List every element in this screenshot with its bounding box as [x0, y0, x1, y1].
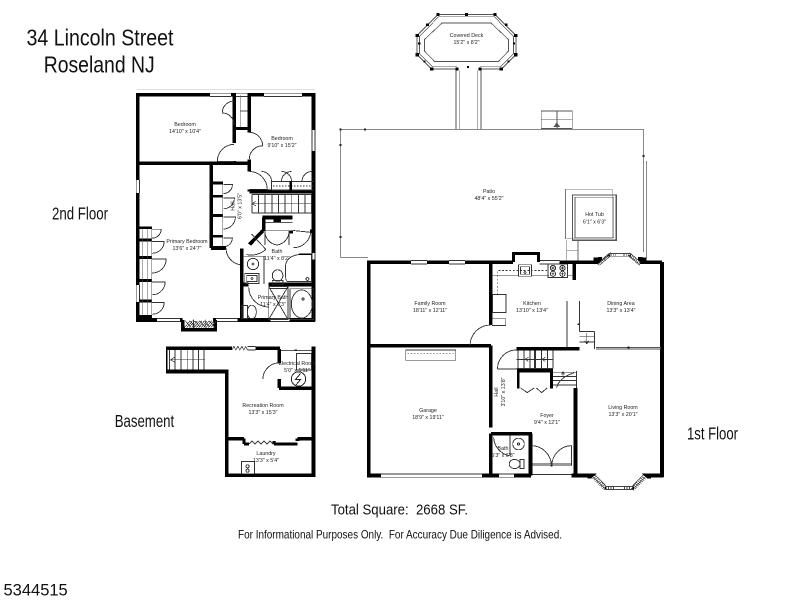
svg-text:Foyer: Foyer [540, 413, 554, 419]
svg-text:48'4" x 55'2": 48'4" x 55'2" [474, 196, 503, 202]
svg-text:18'11" x 12'11": 18'11" x 12'11" [413, 308, 447, 314]
svg-text:Family Room: Family Room [414, 301, 446, 307]
svg-text:13'3" x 15'3": 13'3" x 15'3" [248, 410, 277, 416]
svg-text:Primary Bath: Primary Bath [258, 295, 289, 301]
svg-text:11'4" x 7'3": 11'4" x 7'3" [260, 302, 286, 308]
svg-text:13'6" x 24'7": 13'6" x 24'7" [172, 246, 201, 252]
svg-text:Laundry: Laundry [256, 451, 275, 457]
svg-text:6'1" x 6'3": 6'1" x 6'3" [583, 220, 606, 226]
svg-text:13'3" x 20'1": 13'3" x 20'1" [608, 412, 637, 418]
svg-text:Hall: Hall [494, 387, 500, 396]
svg-text:Recreation Room: Recreation Room [242, 403, 284, 409]
svg-text:Bath: Bath [498, 446, 509, 452]
svg-text:11'4" x 8'2": 11'4" x 8'2" [264, 256, 290, 262]
svg-text:Basement: Basement [115, 411, 175, 431]
svg-text:3'10" x 13'8": 3'10" x 13'8" [501, 377, 507, 406]
svg-text:2nd Floor: 2nd Floor [52, 204, 108, 224]
svg-text:34 Lincoln Street: 34 Lincoln Street [27, 25, 174, 51]
svg-text:Patio: Patio [483, 189, 495, 195]
svg-text:Roseland NJ: Roseland NJ [44, 51, 155, 77]
svg-text:Living Room: Living Room [608, 405, 638, 411]
svg-text:Bath: Bath [272, 249, 283, 255]
svg-text:Dining Area: Dining Area [607, 301, 634, 307]
svg-text:Garage: Garage [419, 408, 437, 414]
svg-text:18'9" x 19'11": 18'9" x 19'11" [412, 415, 444, 421]
svg-text:Bedroom: Bedroom [271, 136, 293, 142]
svg-text:Total Square: 2668 SF.: Total Square: 2668 SF. [331, 503, 468, 519]
svg-text:9'4" x 12'1": 9'4" x 12'1" [534, 420, 560, 426]
svg-text:Hall: Hall [231, 201, 237, 210]
svg-text:15'2" x 8'2": 15'2" x 8'2" [453, 40, 479, 46]
svg-text:Kitchen: Kitchen [523, 301, 541, 307]
svg-text:5344515: 5344515 [4, 582, 68, 600]
svg-text:13'3" x 5'4": 13'3" x 5'4" [253, 458, 279, 464]
svg-text:9'10" x 15'2": 9'10" x 15'2" [267, 143, 296, 149]
svg-text:Electrical Room: Electrical Room [278, 361, 316, 367]
svg-text:5'3" x 6'8": 5'3" x 6'8" [491, 453, 514, 459]
svg-text:13'10" x 13'4": 13'10" x 13'4" [516, 308, 548, 314]
svg-text:1st Floor: 1st Floor [687, 424, 738, 444]
svg-text:For Informational Purposes Onl: For Informational Purposes Only. For Acc… [238, 528, 562, 542]
svg-text:Covered Deck: Covered Deck [450, 33, 484, 39]
svg-text:Bedroom: Bedroom [174, 122, 196, 128]
svg-text:6'0" x 13'5": 6'0" x 13'5" [238, 193, 244, 219]
svg-text:13'3" x 13'4": 13'3" x 13'4" [606, 308, 635, 314]
svg-text:14'10" x 10'4": 14'10" x 10'4" [169, 129, 201, 135]
svg-text:Hot Tub: Hot Tub [585, 212, 604, 218]
svg-text:Primary Bedroom: Primary Bedroom [166, 239, 208, 245]
svg-text:5'0" x 5'11": 5'0" x 5'11" [284, 368, 310, 374]
